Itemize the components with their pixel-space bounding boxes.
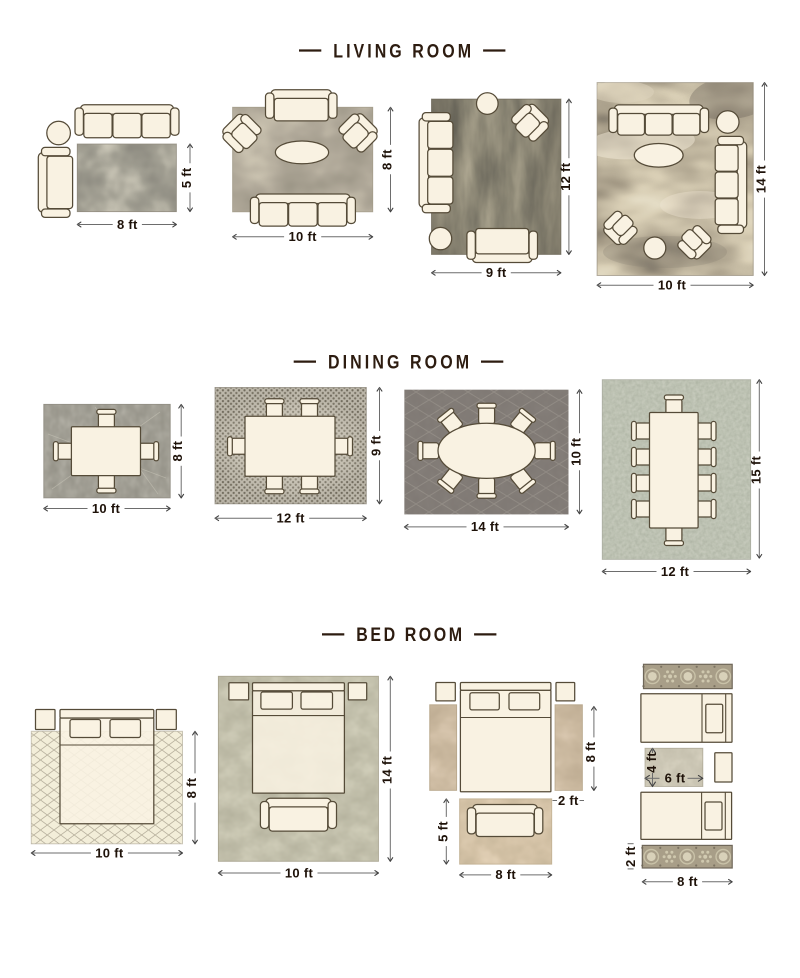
svg-text:8 ft: 8 ft bbox=[677, 874, 698, 889]
svg-text:10 ft: 10 ft bbox=[658, 278, 687, 293]
svg-text:8 ft: 8 ft bbox=[583, 741, 598, 762]
svg-text:8 ft: 8 ft bbox=[495, 867, 516, 882]
svg-text:2 ft: 2 ft bbox=[558, 793, 579, 808]
svg-text:10 ft: 10 ft bbox=[92, 501, 121, 516]
svg-text:8 ft: 8 ft bbox=[170, 440, 185, 461]
svg-text:2 ft: 2 ft bbox=[623, 846, 638, 867]
svg-text:15 ft: 15 ft bbox=[748, 456, 763, 485]
svg-text:14 ft: 14 ft bbox=[754, 165, 769, 194]
svg-text:10 ft: 10 ft bbox=[95, 845, 124, 860]
svg-text:14 ft: 14 ft bbox=[379, 756, 394, 785]
svg-text:5 ft: 5 ft bbox=[179, 167, 194, 188]
svg-text:8 ft: 8 ft bbox=[117, 217, 138, 232]
svg-text:12 ft: 12 ft bbox=[661, 564, 690, 579]
svg-text:6 ft: 6 ft bbox=[665, 771, 686, 786]
svg-text:8 ft: 8 ft bbox=[184, 777, 199, 798]
svg-text:DINING ROOM: DINING ROOM bbox=[328, 351, 469, 373]
svg-text:14 ft: 14 ft bbox=[471, 519, 500, 534]
svg-text:5 ft: 5 ft bbox=[435, 821, 450, 842]
svg-text:BED ROOM: BED ROOM bbox=[356, 624, 462, 646]
svg-text:9 ft: 9 ft bbox=[369, 435, 384, 456]
svg-text:9 ft: 9 ft bbox=[486, 265, 507, 280]
svg-text:12 ft: 12 ft bbox=[558, 162, 573, 191]
svg-text:12 ft: 12 ft bbox=[276, 511, 305, 526]
svg-text:LIVING ROOM: LIVING ROOM bbox=[333, 40, 471, 62]
svg-text:10 ft: 10 ft bbox=[569, 437, 584, 466]
svg-text:4 ft: 4 ft bbox=[644, 752, 659, 773]
svg-text:8 ft: 8 ft bbox=[380, 149, 395, 170]
svg-text:10 ft: 10 ft bbox=[285, 865, 314, 880]
svg-text:10 ft: 10 ft bbox=[288, 229, 317, 244]
